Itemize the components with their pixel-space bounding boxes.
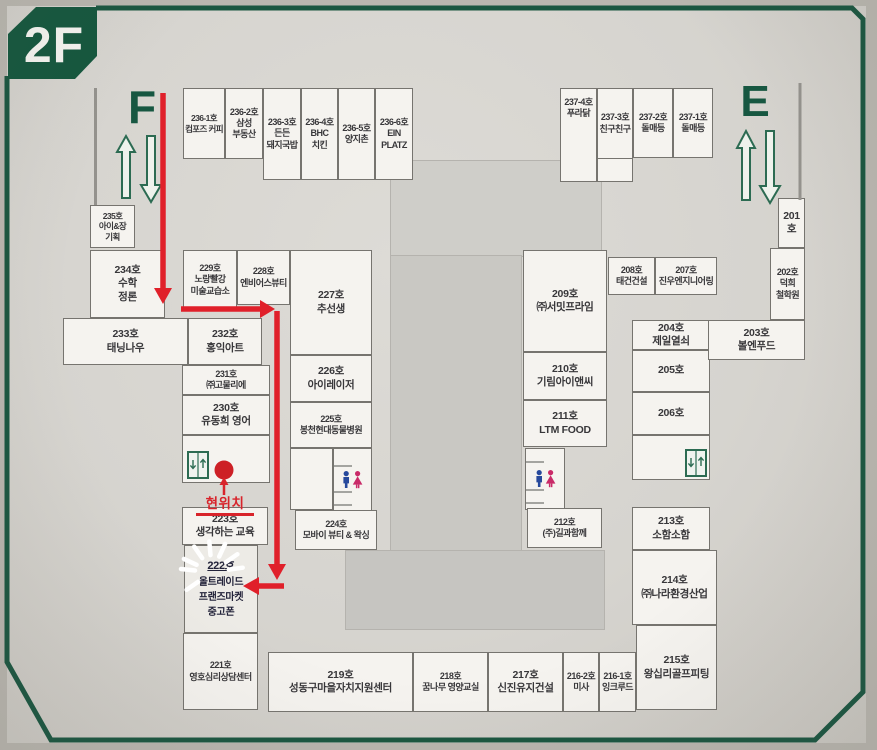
room-id: 237-3호 — [601, 112, 629, 123]
room-name: 수학 정론 — [118, 277, 137, 303]
room-id: 229호 — [199, 263, 220, 274]
room-name: 제일열쇠 — [652, 335, 689, 348]
room-cell-blank — [632, 435, 710, 480]
room-cell-222: 222호올트레이드 프랜즈마켓 중고폰 — [184, 545, 258, 633]
room-id: 228호 — [253, 266, 274, 277]
room-id: 209호 — [552, 288, 578, 301]
room-cell-234: 234호수학 정론 — [90, 250, 165, 318]
room-id: 236-4호 — [305, 117, 333, 128]
room-name: (주)길과함께 — [543, 528, 587, 539]
room-cell-202: 202호덕희 철학원 — [770, 248, 805, 320]
floor-label: 2F — [12, 16, 96, 74]
room-id: 226호 — [318, 365, 344, 378]
room-cell-226: 226호아이레이저 — [290, 355, 372, 402]
room-cell-236-1: 236-1호컴포즈 커피 — [183, 88, 225, 159]
room-id: 222호 — [207, 558, 234, 575]
escalator-f-label: F — [118, 84, 166, 130]
room-name: 태건건설 — [616, 276, 647, 287]
room-id: 235호 — [103, 211, 123, 222]
room-id: 237-4호 — [564, 97, 592, 108]
room-id: 215호 — [664, 654, 690, 667]
room-cell-235: 235호아이&장 기획 — [90, 205, 135, 248]
floor-map: 236-1호컴포즈 커피236-2호삼성 부동산236-3호든든 돼지국밥236… — [0, 0, 877, 750]
room-name: ㈜나라환경산업 — [641, 588, 707, 601]
room-cell-217: 217호신진유지건설 — [488, 652, 563, 712]
room-name: 돌매등 — [681, 123, 704, 134]
room-name: 소함소함 — [652, 529, 689, 542]
room-cell-219: 219호성동구마을자치지원센터 — [268, 652, 413, 712]
room-id: 225호 — [320, 414, 341, 425]
room-name: 돌매등 — [641, 123, 664, 134]
room-cell-236-2: 236-2호삼성 부동산 — [225, 88, 263, 159]
room-id: 221호 — [210, 660, 231, 671]
room-id: 216-1호 — [603, 671, 631, 682]
room-name: 친구친구 — [599, 124, 630, 135]
room-id: 219호 — [328, 669, 354, 682]
room-id: 218호 — [440, 671, 461, 682]
room-cell-236-3: 236-3호든든 돼지국밥 — [263, 88, 301, 180]
room-cell-227: 227호추선생 — [290, 250, 372, 355]
room-id: 208호 — [621, 265, 642, 276]
room-id: 201호 — [780, 210, 803, 236]
room-name: 모바이 뷰티 & 왁싱 — [303, 530, 369, 541]
room-name: 엔비어스뷰티 — [240, 278, 287, 289]
room-name: LTM FOOD — [539, 424, 591, 437]
room-cell-211: 211호LTM FOOD — [523, 400, 607, 447]
room-name: 생각하는 교육 — [196, 526, 255, 539]
room-name: BHC 치킨 — [311, 128, 329, 151]
room-cell-blank — [290, 448, 333, 510]
room-id: 214호 — [662, 574, 688, 587]
room-cell-232: 232호홍익아트 — [188, 318, 262, 365]
room-cell-216-1: 216-1호잉크루드 — [599, 652, 636, 712]
room-name: 아이&장 기획 — [99, 221, 126, 242]
room-cell-206: 206호 — [632, 392, 710, 435]
room-id: 234호 — [115, 264, 141, 277]
room-name: 푸라닭 — [567, 108, 590, 119]
room-name: 미사 — [573, 682, 589, 693]
room-name: 덕희 철학원 — [776, 278, 799, 301]
room-id: 205호 — [658, 364, 684, 377]
room-id: 237-1호 — [679, 112, 707, 123]
room-name: ㈜서밋프라임 — [537, 301, 594, 314]
room-name: 태닝나우 — [107, 342, 144, 355]
room-cell-207: 207호진우엔지니어링 — [655, 257, 717, 295]
room-cell-blank — [597, 158, 633, 182]
restroom-cell — [525, 448, 565, 510]
room-cell-236-5: 236-5호양지촌 — [338, 88, 375, 180]
room-id: 236-6호 — [380, 117, 408, 128]
room-name: 꿈나무 영양교실 — [422, 682, 478, 693]
room-cell-228: 228호엔비어스뷰티 — [237, 250, 290, 305]
room-name: 신진유지건설 — [497, 682, 553, 695]
room-cell-218: 218호꿈나무 영양교실 — [413, 652, 488, 712]
room-id: 212호 — [554, 517, 575, 528]
room-cell-212: 212호(주)길과함께 — [527, 508, 602, 548]
room-cell-blank — [182, 435, 270, 483]
room-name: 잉크루드 — [602, 682, 633, 693]
room-id: 236-3호 — [268, 117, 296, 128]
room-cell-236-4: 236-4호BHC 치킨 — [301, 88, 338, 180]
room-id: 202호 — [777, 267, 798, 278]
room-name: 성동구마을자치지원센터 — [289, 682, 392, 695]
room-cell-237-4: 237-4호푸라닭 — [560, 88, 597, 182]
room-name: 왕십리골프피팅 — [644, 668, 710, 681]
room-name: 올트레이드 프랜즈마켓 중고폰 — [199, 575, 244, 620]
escalator-e-label: E — [733, 80, 777, 124]
room-id: 233호 — [113, 328, 139, 341]
room-name: 봉천현대동물병원 — [300, 425, 362, 436]
room-cell-229: 229호노랑빨강 미술교습소 — [183, 250, 237, 310]
room-name: 노랑빨강 미술교습소 — [191, 274, 230, 297]
room-cell-225: 225호봉천현대동물병원 — [290, 402, 372, 448]
room-cell-203: 203호볼엔푸드 — [708, 320, 805, 360]
room-cell-221: 221호영호심리상담센터 — [183, 633, 258, 710]
room-name: 삼성 부동산 — [232, 118, 255, 141]
room-id: 236-1호 — [191, 113, 217, 124]
room-id: 207호 — [675, 265, 696, 276]
room-id: 211호 — [552, 410, 577, 423]
room-name: 컴포즈 커피 — [185, 124, 223, 135]
room-name: 홍익아트 — [206, 342, 243, 355]
room-id: 230호 — [213, 402, 239, 415]
room-name: 아이레이저 — [308, 379, 355, 392]
room-name: 기림아이앤씨 — [537, 376, 593, 389]
room-cell-237-2: 237-2호돌매등 — [633, 88, 673, 158]
room-cell-205: 205호 — [632, 350, 710, 392]
room-id: 232호 — [212, 328, 238, 341]
room-id: 203호 — [744, 327, 770, 340]
room-cell-224: 224호모바이 뷰티 & 왁싱 — [295, 510, 377, 550]
room-id: 210호 — [552, 363, 578, 376]
room-name: EIN PLATZ — [381, 128, 407, 151]
room-cell-233: 233호태닝나우 — [63, 318, 188, 365]
room-id: 217호 — [513, 669, 539, 682]
room-cell-209: 209호㈜서밋프라임 — [523, 250, 607, 352]
room-id: 237-2호 — [639, 112, 667, 123]
room-cell-215: 215호왕십리골프피팅 — [636, 625, 717, 710]
room-cell-214: 214호㈜나라환경산업 — [632, 550, 717, 625]
room-name: 추선생 — [317, 303, 345, 316]
room-cell-204: 204호제일열쇠 — [632, 320, 710, 350]
room-cell-216-2: 216-2호미사 — [563, 652, 599, 712]
room-cell-237-1: 237-1호돌매등 — [673, 88, 713, 158]
room-id: 216-2호 — [567, 671, 595, 682]
room-id: 206호 — [658, 407, 684, 420]
room-id: 231호 — [215, 369, 236, 380]
room-name: 유동희 영어 — [201, 415, 250, 428]
room-id: 227호 — [318, 289, 344, 302]
room-cell-236-6: 236-6호EIN PLATZ — [375, 88, 413, 180]
room-cell-201: 201호 — [778, 198, 805, 248]
room-name: 진우엔지니어링 — [659, 276, 713, 287]
room-cell-237-3: 237-3호친구친구 — [597, 88, 633, 159]
room-id: 204호 — [658, 322, 684, 335]
room-cell-208: 208호태건건설 — [608, 257, 655, 295]
room-cell-210: 210호기림아이앤씨 — [523, 352, 607, 400]
room-name: 양지촌 — [345, 134, 368, 145]
restroom-cell — [333, 448, 372, 515]
room-name: 든든 돼지국밥 — [266, 128, 297, 151]
room-cell-231: 231호㈜고물리에 — [182, 365, 270, 395]
room-cell-213: 213호소함소함 — [632, 507, 710, 550]
room-name: 영호심리상담센터 — [189, 672, 251, 683]
room-id: 213호 — [658, 515, 684, 528]
room-name: 볼엔푸드 — [738, 340, 775, 353]
room-id: 236-5호 — [342, 123, 370, 134]
room-id: 224호 — [325, 519, 346, 530]
current-location-label: 현위치 — [196, 492, 254, 516]
room-name: ㈜고물리에 — [206, 380, 246, 391]
room-id: 236-2호 — [230, 107, 258, 118]
room-cell-230: 230호유동희 영어 — [182, 395, 270, 435]
